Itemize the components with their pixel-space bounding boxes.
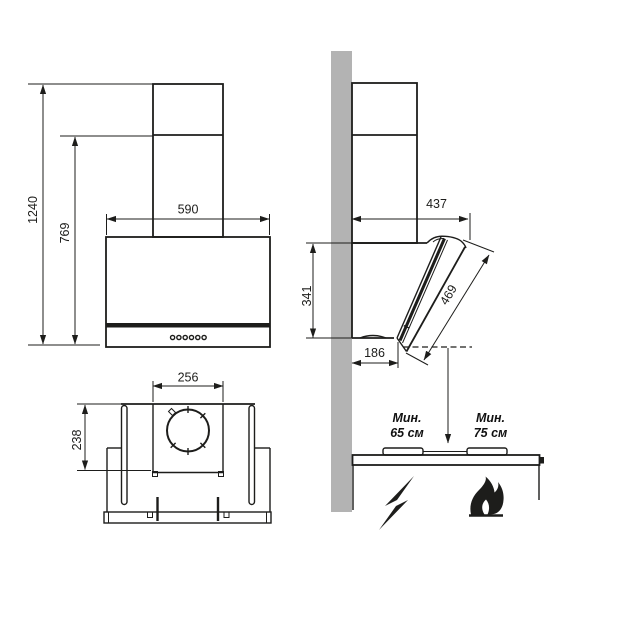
- hood-button: [177, 335, 181, 339]
- dim-height-total: 1240: [26, 85, 43, 344]
- side-view: 437 341 186 469: [300, 83, 494, 443]
- control-buttons: [171, 335, 207, 339]
- dim-mount-depth: 238: [70, 404, 151, 471]
- dim-label-341: 341: [300, 286, 314, 307]
- clearance-labels: Мин. 65 см Мин. 75 см: [390, 411, 507, 440]
- panel-front-face: [407, 247, 466, 352]
- dim-panel-length: 469: [406, 240, 494, 365]
- front-view: 1240 769 590: [26, 84, 270, 347]
- dim-label-186: 186: [364, 346, 385, 360]
- hood-button: [189, 335, 193, 339]
- dim-label-590: 590: [178, 203, 199, 217]
- gas-clearance-label-line1: Мин.: [476, 411, 505, 425]
- counter-side-tab: [540, 457, 545, 464]
- dim-label-1240: 1240: [26, 196, 40, 224]
- body-outline: [107, 448, 270, 512]
- lightning-icon: [379, 476, 414, 530]
- bottom-band: [104, 497, 271, 523]
- dim-depth-bottom: 186: [352, 342, 398, 368]
- dim-height-lower: 769: [58, 137, 75, 344]
- dim-label-469: 469: [437, 282, 460, 307]
- flame-icon: [469, 477, 504, 516]
- dim-duct-width: 256: [153, 371, 223, 403]
- hood-button: [196, 335, 200, 339]
- electric-clearance-label-line1: Мин.: [392, 411, 421, 425]
- dim-label-256: 256: [178, 371, 199, 385]
- wall: [331, 51, 352, 512]
- dim-label-238: 238: [70, 430, 84, 451]
- gas-clearance-label-line2: 75 см: [474, 426, 508, 440]
- top-view: 256 238: [70, 371, 271, 524]
- dim-depth-top: 437: [352, 197, 470, 240]
- burner-left: [383, 448, 423, 455]
- hood-button: [183, 335, 187, 339]
- diagram-canvas: 1240 769 590: [0, 0, 624, 619]
- burner-right: [467, 448, 507, 455]
- rail-left: [122, 406, 128, 505]
- hood-button: [171, 335, 175, 339]
- dim-label-769: 769: [58, 223, 72, 244]
- duct-hole: [167, 406, 209, 455]
- extension-lines: [28, 84, 270, 345]
- wall-strip: [331, 51, 352, 512]
- control-panel-band: [107, 323, 270, 328]
- dim-width: 590: [107, 203, 269, 220]
- counter-top: [353, 455, 540, 465]
- dim-label-437: 437: [426, 197, 447, 211]
- rail-right: [249, 406, 255, 505]
- hood-installation-diagram: 1240 769 590: [0, 0, 624, 619]
- dim-body-height: 341: [300, 244, 314, 338]
- hood-body-front: [106, 237, 270, 347]
- duct-plate: [153, 404, 224, 477]
- hood-button: [202, 335, 206, 339]
- electric-clearance-label-line2: 65 см: [390, 426, 424, 440]
